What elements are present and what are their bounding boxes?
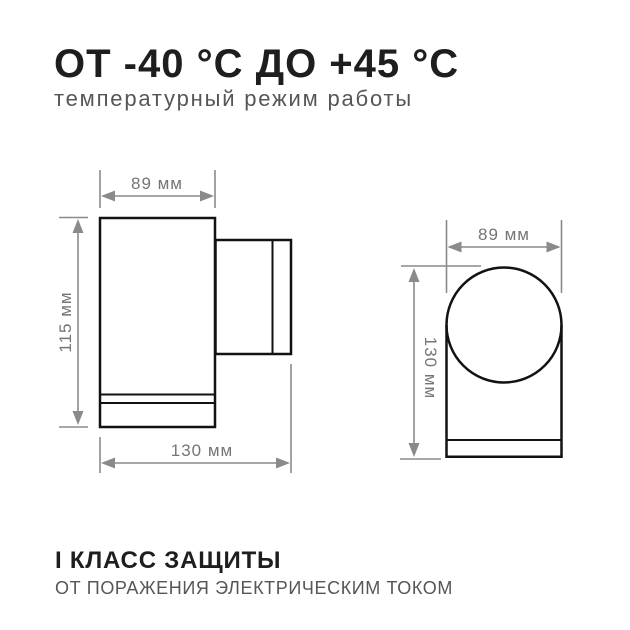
arrow-right-icon <box>200 191 214 202</box>
dimension-drawing: 89 мм 115 мм 130 мм <box>0 0 630 630</box>
arrow-right-icon <box>547 242 561 253</box>
dimension-label: 89 мм <box>131 174 183 193</box>
side-view-depth-dimension: 130 мм <box>100 364 291 473</box>
protection-class-title: I КЛАСС ЗАЩИТЫ <box>55 547 453 575</box>
product-spec-infographic: ОТ -40 °C ДО +45 °C температурный режим … <box>0 0 630 630</box>
arrow-down-icon <box>73 411 84 425</box>
wall-mount-bracket-outline <box>216 240 292 354</box>
arrow-left-icon <box>101 458 115 469</box>
side-view-drawing <box>100 218 291 427</box>
dimension-label: 130 мм <box>171 441 233 460</box>
arrow-left-icon <box>101 191 115 202</box>
arrow-up-icon <box>409 268 420 282</box>
arrow-right-icon <box>276 458 290 469</box>
lamp-head-circle-outline <box>447 268 562 383</box>
protection-class-footer: I КЛАСС ЗАЩИТЫ ОТ ПОРАЖЕНИЯ ЭЛЕКТРИЧЕСКИ… <box>55 547 453 599</box>
arrow-left-icon <box>448 242 462 253</box>
side-view-height-dimension: 115 мм <box>56 218 88 428</box>
dimension-label: 89 мм <box>478 225 530 244</box>
front-view-drawing <box>447 268 562 457</box>
front-view-width-dimension: 89 мм <box>447 220 562 293</box>
front-view-height-dimension: 130 мм <box>400 266 481 459</box>
dimension-label: 115 мм <box>56 291 75 352</box>
side-view-width-dimension: 89 мм <box>100 170 215 208</box>
protection-class-subtitle: ОТ ПОРАЖЕНИЯ ЭЛЕКТРИЧЕСКИМ ТОКОМ <box>55 577 453 599</box>
arrow-up-icon <box>73 219 84 233</box>
lamp-body-front-outline <box>447 325 562 457</box>
arrow-down-icon <box>409 443 420 457</box>
dimension-label: 130 мм <box>421 337 440 399</box>
lamp-body-outline <box>100 218 215 427</box>
